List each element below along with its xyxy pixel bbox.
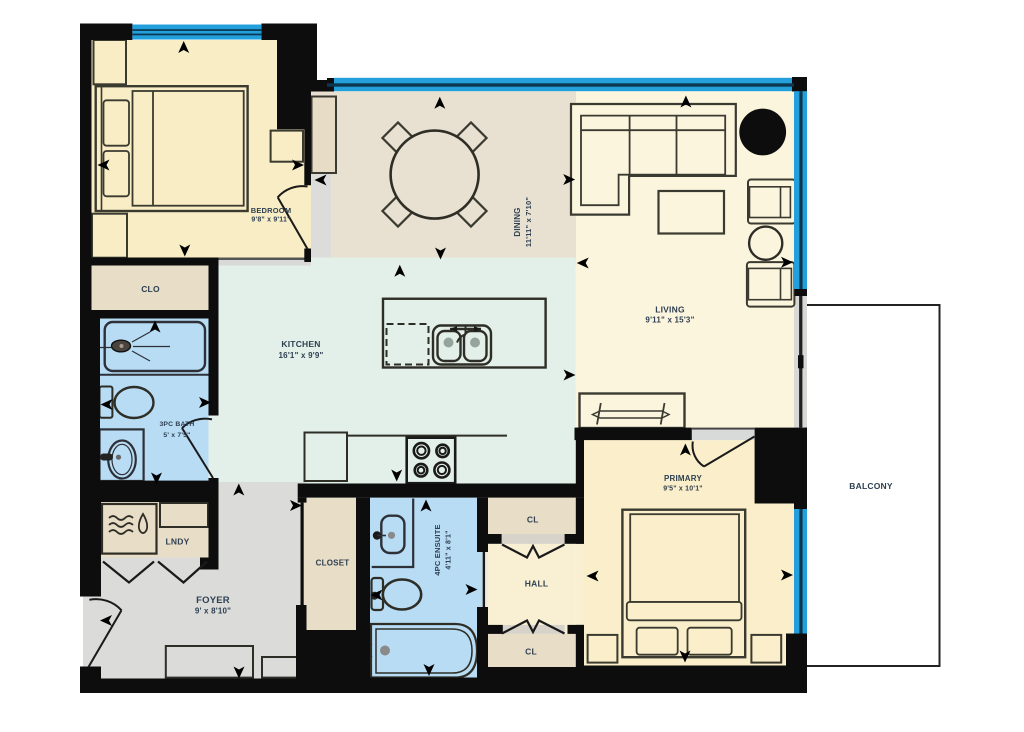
svg-text:CL: CL	[527, 515, 539, 525]
svg-text:HALL: HALL	[525, 579, 548, 589]
svg-text:11'11" x 7'10": 11'11" x 7'10"	[524, 197, 533, 247]
svg-text:DINING: DINING	[513, 207, 522, 236]
svg-text:CLOSET: CLOSET	[316, 559, 350, 568]
svg-text:9'8" x 9'11": 9'8" x 9'11"	[251, 217, 290, 224]
svg-text:BEDROOM: BEDROOM	[251, 206, 292, 215]
svg-text:3PC BATH: 3PC BATH	[159, 421, 194, 428]
svg-text:FOYER: FOYER	[196, 595, 230, 606]
svg-text:CL: CL	[525, 647, 537, 657]
svg-text:9' x 8'10": 9' x 8'10"	[195, 607, 231, 616]
svg-text:4'11" x 8'1": 4'11" x 8'1"	[446, 530, 453, 569]
svg-text:9'11" x 15'3": 9'11" x 15'3"	[645, 316, 694, 325]
svg-text:4PC ENSUITE: 4PC ENSUITE	[433, 524, 442, 575]
svg-text:PRIMARY: PRIMARY	[664, 474, 702, 483]
svg-text:CLO: CLO	[141, 284, 160, 294]
svg-text:KITCHEN: KITCHEN	[281, 339, 320, 349]
svg-text:16'1" x 9'9": 16'1" x 9'9"	[279, 351, 324, 360]
svg-text:BALCONY: BALCONY	[849, 481, 893, 491]
svg-text:5' x 7'5": 5' x 7'5"	[163, 432, 190, 439]
svg-text:LIVING: LIVING	[655, 305, 685, 315]
svg-text:LNDY: LNDY	[166, 537, 190, 547]
svg-text:9'5" x 10'1": 9'5" x 10'1"	[663, 486, 703, 493]
